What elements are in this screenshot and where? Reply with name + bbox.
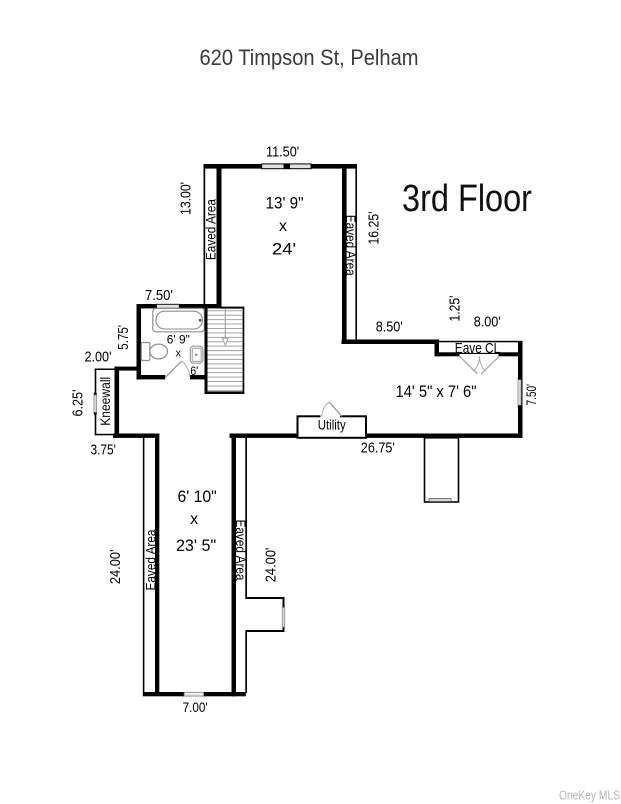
svg-text:13' 9": 13' 9" [266,193,304,212]
svg-text:7.50': 7.50' [145,287,173,304]
svg-text:Eaved Area: Eaved Area [203,199,219,260]
svg-text:Utility: Utility [318,418,346,433]
svg-text:x: x [190,511,198,528]
svg-text:620 Timpson St, Pelham: 620 Timpson St, Pelham [200,45,419,70]
svg-text:7.00': 7.00' [183,699,208,715]
svg-text:23' 5": 23' 5" [176,536,216,555]
svg-text:6': 6' [190,364,198,378]
svg-text:16.25': 16.25' [365,211,382,244]
svg-text:Eaved Area: Eaved Area [343,215,359,276]
svg-text:14' 5" x 7' 6": 14' 5" x 7' 6" [396,382,477,401]
svg-text:3.75': 3.75' [91,441,117,458]
svg-text:24.00': 24.00' [263,547,280,582]
svg-text:Eave CL: Eave CL [455,341,500,357]
svg-text:8.50': 8.50' [376,319,403,336]
svg-text:6' 10": 6' 10" [177,487,216,506]
svg-text:7.50': 7.50' [523,384,539,406]
svg-text:24.00': 24.00' [107,549,124,584]
svg-text:6' 9": 6' 9" [167,333,190,347]
svg-text:24': 24' [272,240,296,259]
svg-text:11.50': 11.50' [266,143,299,160]
svg-text:1.25': 1.25' [447,295,464,321]
svg-text:26.75': 26.75' [361,440,395,457]
svg-text:Eaved Area: Eaved Area [142,529,158,590]
svg-text:2.00': 2.00' [85,348,112,365]
svg-text:Kneewall: Kneewall [97,377,113,426]
svg-text:6.25': 6.25' [69,389,86,416]
svg-text:3rd Floor: 3rd Floor [402,178,532,220]
svg-text:5.75': 5.75' [115,325,132,350]
svg-text:OneKey MLS: OneKey MLS [559,789,620,803]
svg-text:x: x [176,347,182,359]
svg-text:x: x [279,218,287,235]
svg-text:8.00': 8.00' [474,314,501,331]
svg-text:Eaved Area: Eaved Area [233,520,249,581]
svg-text:13.00': 13.00' [178,182,195,215]
